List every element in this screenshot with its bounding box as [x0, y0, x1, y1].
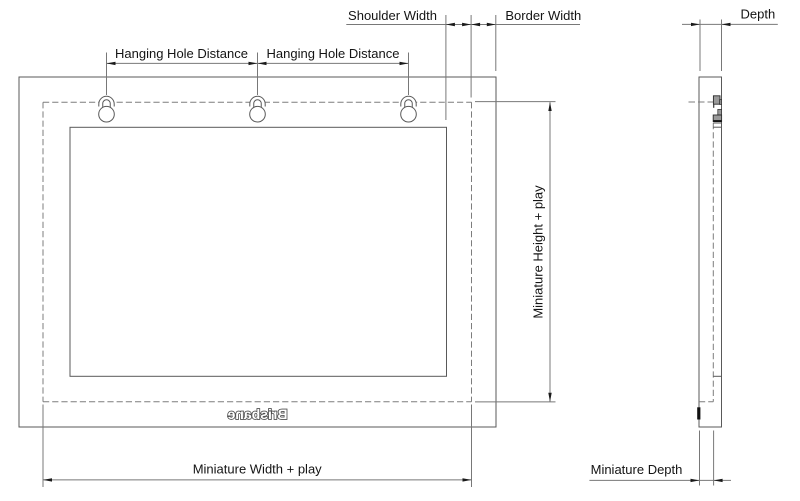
- svg-text:Hanging Hole Distance: Hanging Hole Distance: [115, 46, 248, 61]
- svg-text:Miniature Width + play: Miniature Width + play: [193, 462, 322, 477]
- svg-text:Hanging Hole Distance: Hanging Hole Distance: [267, 46, 400, 61]
- svg-text:Shoulder Width: Shoulder Width: [348, 8, 437, 23]
- svg-text:Border Width: Border Width: [505, 8, 581, 23]
- svg-text:Depth: Depth: [741, 7, 776, 22]
- svg-text:Miniature Height + play: Miniature Height + play: [531, 185, 546, 319]
- svg-text:Miniature Depth: Miniature Depth: [591, 462, 683, 477]
- svg-text:Brisbane: Brisbane: [227, 406, 287, 422]
